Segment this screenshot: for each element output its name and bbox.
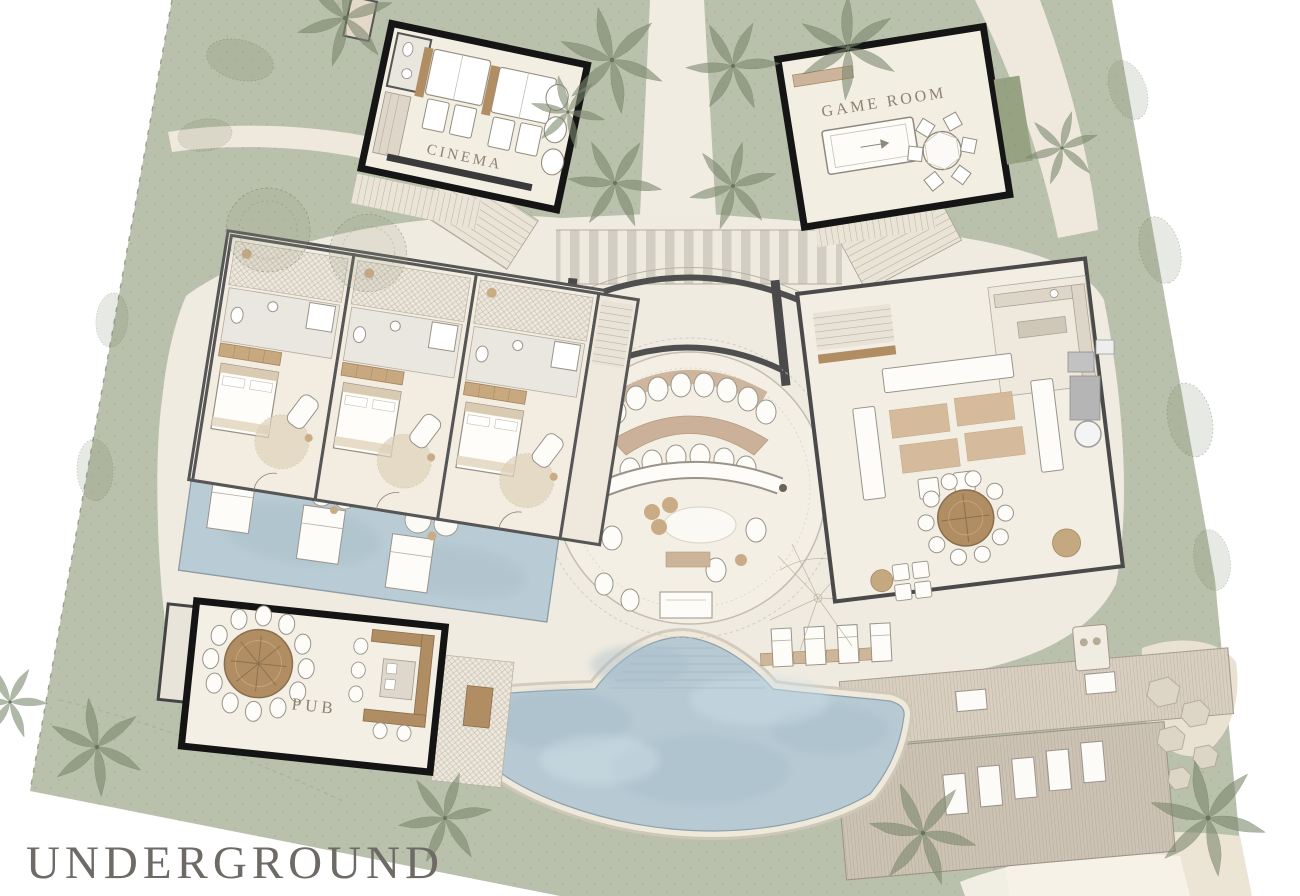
outdoor-shower-platform xyxy=(1072,624,1110,671)
north-walkway xyxy=(640,0,716,216)
tree-canopy xyxy=(226,188,310,272)
plan-title: UNDERGROUND xyxy=(26,836,444,890)
floor-plan-canvas: PUB CINEMA xyxy=(0,0,1300,896)
tree-canopy xyxy=(329,214,406,291)
floor-plan-drawing: PUB CINEMA xyxy=(0,0,1300,896)
